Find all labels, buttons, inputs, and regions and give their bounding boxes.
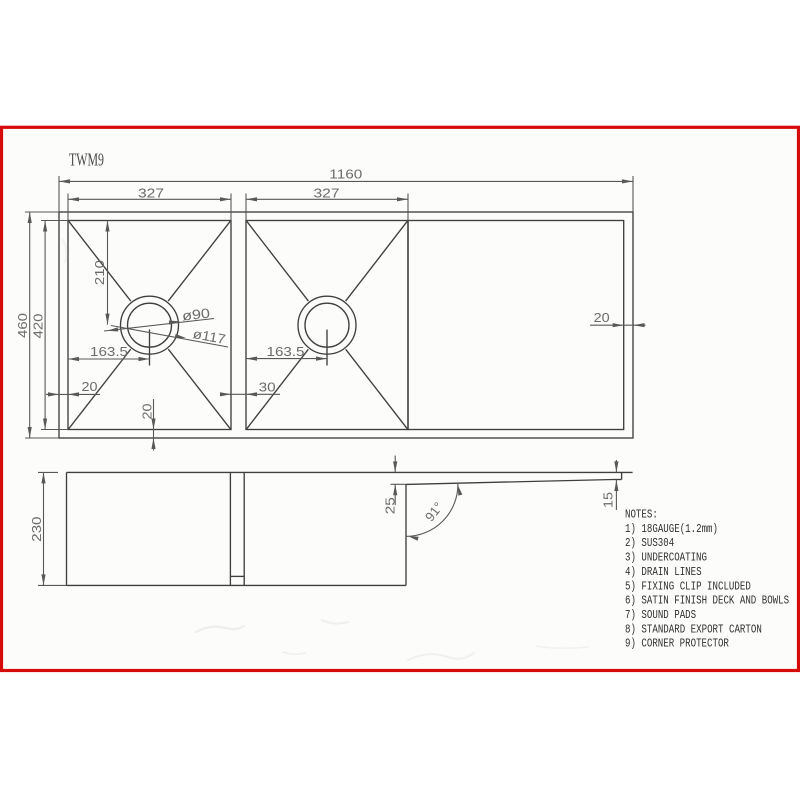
svg-text:1) 18GAUGE(1.2mm): 1) 18GAUGE(1.2mm) <box>625 523 718 536</box>
svg-text:210: 210 <box>92 260 107 285</box>
svg-text:230: 230 <box>29 516 44 542</box>
svg-text:2) SUS304: 2) SUS304 <box>625 537 674 550</box>
svg-text:20: 20 <box>139 404 154 420</box>
svg-text:15: 15 <box>601 492 616 508</box>
svg-text:4) DRAIN LINES: 4) DRAIN LINES <box>625 566 702 579</box>
svg-text:163.5: 163.5 <box>267 344 305 359</box>
svg-text:7) SOUND PADS: 7) SOUND PADS <box>625 609 696 622</box>
svg-text:TWM9: TWM9 <box>69 150 104 170</box>
svg-text:8) STANDARD EXPORT CARTON: 8) STANDARD EXPORT CARTON <box>625 623 762 636</box>
svg-text:3) UNDERCOATING: 3) UNDERCOATING <box>625 552 707 565</box>
svg-text:ø90: ø90 <box>181 305 211 323</box>
svg-text:6) SATIN FINISH DECK AND BOWLS: 6) SATIN FINISH DECK AND BOWLS <box>625 595 789 608</box>
svg-text:163.5: 163.5 <box>90 344 128 359</box>
svg-text:20: 20 <box>82 379 98 394</box>
svg-text:1160: 1160 <box>329 166 362 181</box>
svg-text:420: 420 <box>30 314 45 339</box>
svg-text:327: 327 <box>314 186 340 201</box>
svg-text:30: 30 <box>259 380 276 395</box>
svg-text:5) FIXING CLIP INCLUDED: 5) FIXING CLIP INCLUDED <box>625 580 751 593</box>
svg-text:460: 460 <box>15 313 30 338</box>
svg-text:25: 25 <box>383 497 398 514</box>
svg-text:327: 327 <box>138 186 164 201</box>
svg-text:20: 20 <box>594 310 610 325</box>
svg-text:NOTES:: NOTES: <box>625 509 658 522</box>
svg-text:9) CORNER PROTECTOR: 9) CORNER PROTECTOR <box>625 638 729 651</box>
